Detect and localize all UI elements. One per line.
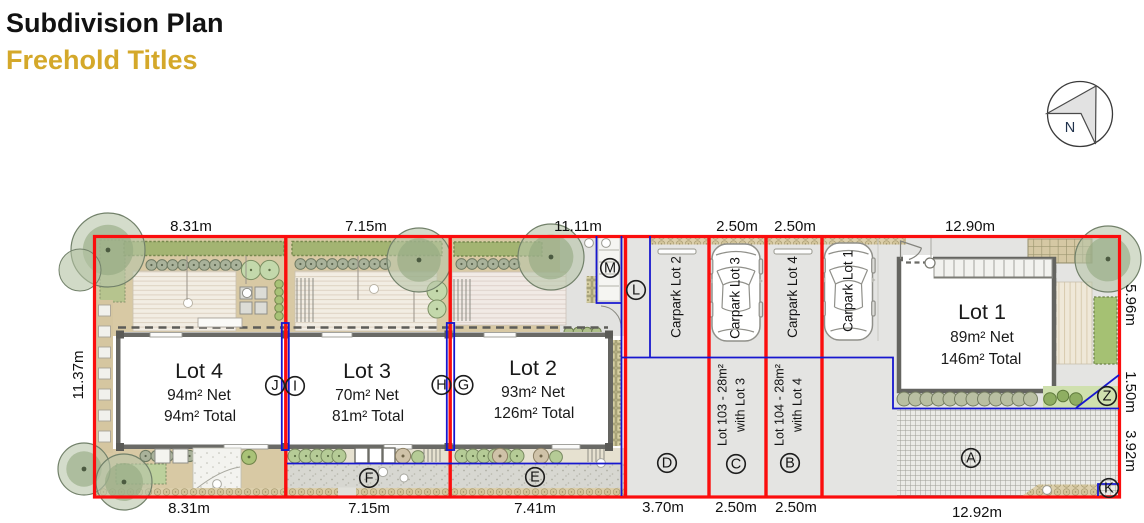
svg-text:J: J <box>271 378 278 394</box>
svg-text:Lot 104 - 28m²: Lot 104 - 28m² <box>772 364 786 446</box>
svg-text:8.31m: 8.31m <box>170 218 212 235</box>
svg-text:G: G <box>458 377 469 393</box>
svg-text:D: D <box>662 455 672 471</box>
svg-text:Lot 103 - 28m²: Lot 103 - 28m² <box>715 364 729 446</box>
svg-text:94m² Total: 94m² Total <box>164 408 236 425</box>
svg-text:7.15m: 7.15m <box>348 500 390 517</box>
svg-text:2.50m: 2.50m <box>716 218 758 235</box>
svg-text:A: A <box>966 450 976 466</box>
svg-text:89m² Net: 89m² Net <box>950 329 1014 346</box>
svg-text:Carpark Lot 2: Carpark Lot 2 <box>669 256 684 338</box>
svg-text:2.50m: 2.50m <box>715 499 757 516</box>
svg-text:H: H <box>436 377 446 393</box>
svg-text:94m² Net: 94m² Net <box>167 387 231 404</box>
svg-text:E: E <box>530 469 540 485</box>
svg-text:K: K <box>1104 480 1114 496</box>
svg-text:126m² Total: 126m² Total <box>494 405 575 422</box>
svg-text:7.15m: 7.15m <box>345 218 387 235</box>
svg-text:Lot 4: Lot 4 <box>175 359 223 383</box>
svg-text:with Lot 3: with Lot 3 <box>733 378 747 433</box>
svg-text:Carpark Lot 1: Carpark Lot 1 <box>841 250 856 332</box>
svg-text:Carpark Lot 4: Carpark Lot 4 <box>785 256 800 338</box>
svg-text:2.50m: 2.50m <box>775 499 817 516</box>
svg-text:5.96m: 5.96m <box>1122 284 1139 326</box>
svg-text:11.37m: 11.37m <box>70 351 87 400</box>
svg-text:Carpark Lot 3: Carpark Lot 3 <box>728 257 743 339</box>
svg-text:Lot 2: Lot 2 <box>509 356 557 380</box>
svg-text:Lot 3: Lot 3 <box>343 359 391 383</box>
svg-text:Z: Z <box>1103 388 1112 404</box>
svg-text:L: L <box>632 282 640 298</box>
svg-text:N: N <box>1065 120 1075 136</box>
svg-text:8.31m: 8.31m <box>168 500 210 517</box>
svg-text:81m² Total: 81m² Total <box>332 408 404 425</box>
svg-text:M: M <box>604 260 616 276</box>
svg-text:1.50m: 1.50m <box>1122 371 1139 413</box>
svg-text:11.11m: 11.11m <box>554 218 602 235</box>
svg-text:146m² Total: 146m² Total <box>941 351 1022 368</box>
svg-text:3.92m: 3.92m <box>1122 430 1139 472</box>
svg-text:3.70m: 3.70m <box>642 499 684 516</box>
svg-text:2.50m: 2.50m <box>774 218 816 235</box>
svg-text:with Lot 4: with Lot 4 <box>790 378 804 433</box>
svg-text:Lot 1: Lot 1 <box>958 300 1006 324</box>
svg-text:70m² Net: 70m² Net <box>335 387 399 404</box>
svg-text:93m² Net: 93m² Net <box>501 384 565 401</box>
svg-text:12.92m: 12.92m <box>952 504 1002 521</box>
svg-text:C: C <box>731 456 741 472</box>
svg-text:I: I <box>293 378 297 394</box>
svg-text:F: F <box>365 470 374 486</box>
svg-text:B: B <box>785 455 795 471</box>
svg-text:7.41m: 7.41m <box>514 500 556 517</box>
svg-text:12.90m: 12.90m <box>945 218 995 235</box>
